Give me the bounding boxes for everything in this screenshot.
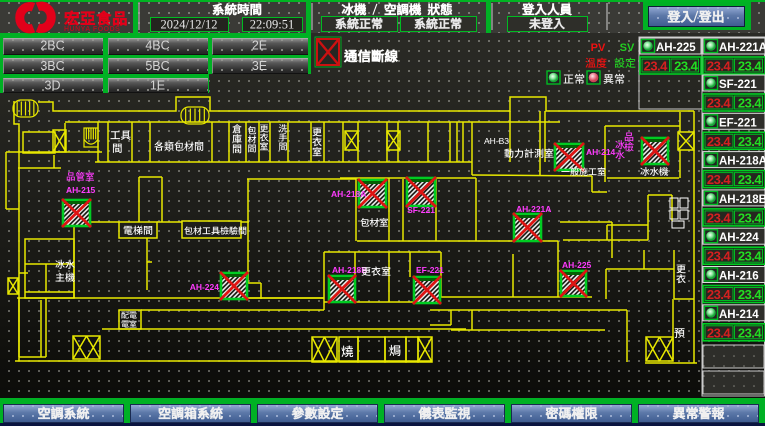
svg-text:23.4: 23.4 [738, 325, 763, 340]
svg-text:AH-225: AH-225 [656, 42, 696, 54]
svg-text:5BC: 5BC [145, 59, 169, 73]
svg-text:AH-218A: AH-218A [719, 156, 765, 168]
svg-text:AH-B3: AH-B3 [484, 136, 509, 146]
svg-text:23.4: 23.4 [707, 134, 732, 149]
svg-text:23.4: 23.4 [644, 59, 669, 74]
svg-text:23.4: 23.4 [738, 59, 763, 74]
svg-text:SF-221: SF-221 [719, 79, 757, 91]
svg-text:AH-216: AH-216 [719, 271, 759, 283]
svg-text:AH-218A: AH-218A [331, 189, 366, 199]
svg-text:2E: 2E [252, 39, 267, 53]
svg-text:EF-221: EF-221 [416, 265, 444, 275]
svg-text:23.4: 23.4 [738, 96, 763, 111]
svg-text:AH-224: AH-224 [190, 282, 220, 292]
svg-text:AH-221A: AH-221A [516, 204, 551, 214]
svg-text:23.4: 23.4 [738, 287, 763, 302]
svg-text:23.4: 23.4 [707, 210, 732, 225]
svg-text:23.4: 23.4 [707, 325, 732, 340]
svg-text:AH-218B: AH-218B [332, 265, 367, 275]
svg-text:23.4: 23.4 [707, 287, 732, 302]
svg-text:AH-225: AH-225 [562, 260, 592, 270]
svg-text:SV: SV [620, 42, 635, 54]
svg-text:AH-215: AH-215 [66, 185, 96, 195]
svg-text:SF-221: SF-221 [407, 205, 435, 215]
svg-text:23.4: 23.4 [738, 210, 763, 225]
svg-text:AH-214: AH-214 [586, 147, 616, 157]
svg-text:23.4: 23.4 [738, 134, 763, 149]
svg-text:3BC: 3BC [40, 59, 64, 73]
svg-text:AH-224: AH-224 [719, 232, 759, 244]
svg-text:2BC: 2BC [40, 39, 64, 53]
svg-text:23.4: 23.4 [707, 59, 732, 74]
svg-text:EF-221: EF-221 [719, 117, 757, 129]
svg-text:4BC: 4BC [145, 39, 169, 53]
svg-text:HUNYA FOODS: HUNYA FOODS [64, 26, 120, 33]
svg-text:23.4: 23.4 [738, 249, 763, 264]
svg-text:2024/12/12: 2024/12/12 [161, 18, 218, 32]
svg-text:1E: 1E [150, 79, 165, 93]
svg-text:AH-218B: AH-218B [719, 194, 765, 206]
svg-text:3E: 3E [252, 59, 267, 73]
svg-text:23.4: 23.4 [674, 59, 699, 74]
svg-text:23.4: 23.4 [707, 172, 732, 187]
svg-text:PV: PV [591, 42, 606, 54]
svg-text:3D: 3D [45, 79, 61, 93]
svg-text:AH-221A: AH-221A [719, 42, 765, 54]
svg-text:23.4: 23.4 [707, 249, 732, 264]
svg-text:23.4: 23.4 [707, 96, 732, 111]
svg-text:AH-214: AH-214 [719, 309, 759, 321]
svg-text:23.4: 23.4 [738, 172, 763, 187]
svg-text:22:09:51: 22:09:51 [250, 18, 294, 32]
